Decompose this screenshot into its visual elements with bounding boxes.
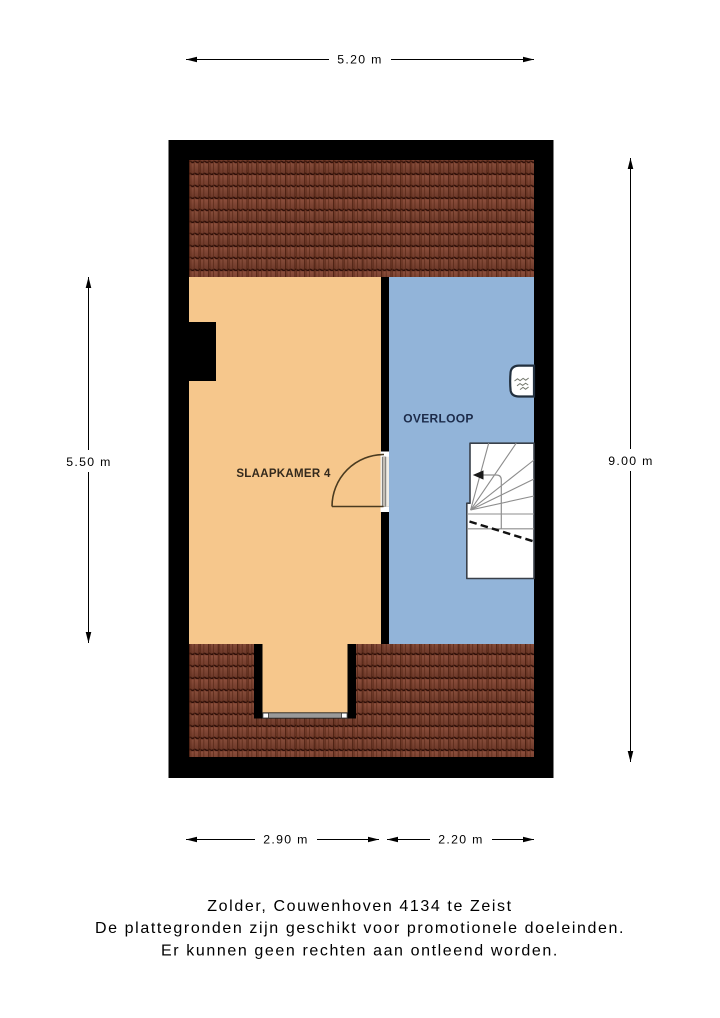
svg-text:Er kunnen geen rechten aan ont: Er kunnen geen rechten aan ontleend word…: [161, 943, 559, 960]
svg-text:2.20 m: 2.20 m: [438, 833, 483, 847]
svg-text:9.00 m: 9.00 m: [608, 454, 653, 468]
svg-text:2.90 m: 2.90 m: [263, 833, 308, 847]
svg-text:OVERLOOP: OVERLOOP: [403, 412, 473, 426]
svg-text:5.50 m: 5.50 m: [66, 455, 111, 469]
svg-text:Zolder, Couwenhoven 4134 te Ze: Zolder, Couwenhoven 4134 te Zeist: [207, 898, 512, 915]
svg-text:5.20 m: 5.20 m: [337, 53, 382, 67]
svg-text:De plattegronden zijn geschikt: De plattegronden zijn geschikt voor prom…: [95, 920, 625, 937]
svg-text:SLAAPKAMER 4: SLAAPKAMER 4: [236, 468, 331, 480]
